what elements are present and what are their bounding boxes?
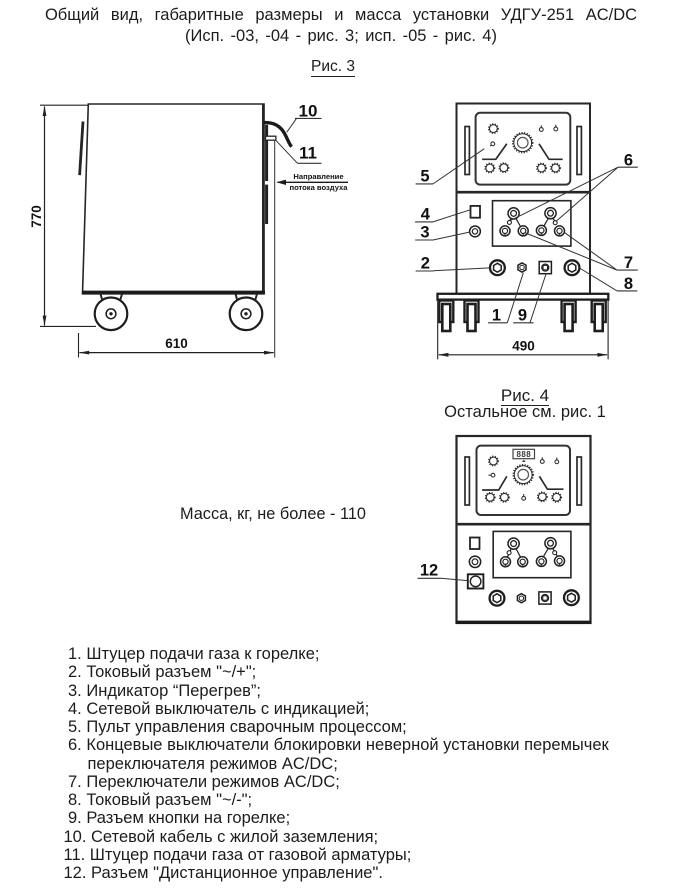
svg-text:1: 1	[492, 307, 501, 325]
svg-text:5: 5	[420, 167, 429, 185]
svg-text:610: 610	[165, 336, 188, 351]
svg-text:6: 6	[624, 151, 633, 169]
svg-text:Направление: Направление	[293, 172, 343, 181]
svg-text:9: 9	[518, 307, 527, 325]
svg-text:770: 770	[29, 205, 44, 228]
svg-text:7: 7	[624, 254, 633, 272]
svg-text:8: 8	[624, 275, 633, 293]
svg-text:4: 4	[421, 205, 431, 223]
svg-text:888: 888	[517, 450, 532, 459]
svg-text:2: 2	[421, 254, 430, 272]
svg-text:10: 10	[299, 101, 318, 120]
svg-text:11: 11	[299, 144, 317, 163]
svg-text:490: 490	[512, 338, 535, 353]
svg-text:потока воздуха: потока воздуха	[290, 183, 349, 192]
svg-text:3: 3	[420, 223, 429, 241]
svg-text:12: 12	[420, 562, 438, 580]
